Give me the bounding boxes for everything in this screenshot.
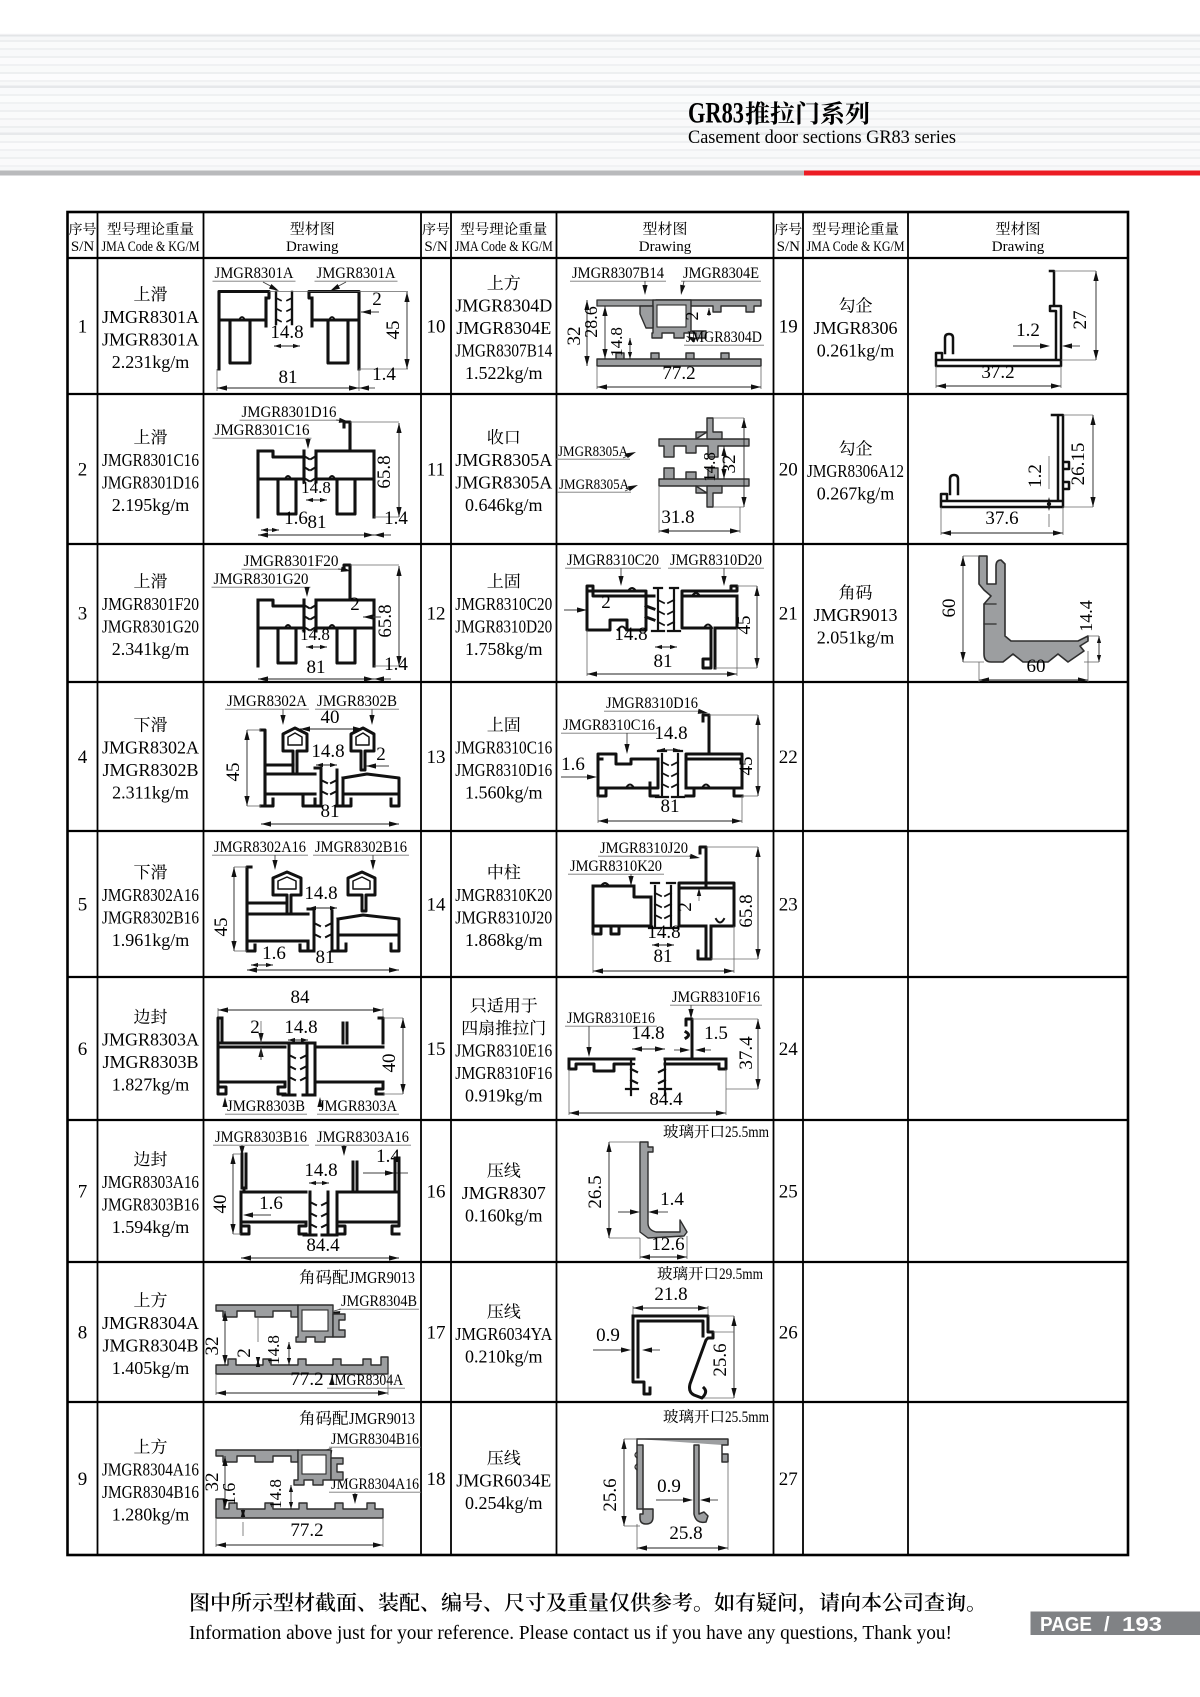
svg-text:14.8: 14.8 — [700, 452, 719, 482]
svg-text:65.8: 65.8 — [736, 894, 757, 927]
svg-text:Casement door sections GR83 se: Casement door sections GR83 series — [688, 128, 956, 148]
svg-text:2.195kg/m: 2.195kg/m — [112, 495, 190, 515]
svg-text:JMGR8310K20: JMGR8310K20 — [570, 858, 662, 875]
svg-text:/: / — [1104, 1614, 1110, 1636]
svg-text:4: 4 — [78, 747, 88, 768]
svg-text:JMGR8304A16: JMGR8304A16 — [331, 1476, 419, 1493]
svg-text:JMGR8305A: JMGR8305A — [559, 477, 629, 493]
svg-text:JMGR8310F16: JMGR8310F16 — [455, 1063, 552, 1083]
svg-text:1.2: 1.2 — [1016, 320, 1040, 341]
svg-text:JMGR8302A16: JMGR8302A16 — [214, 839, 306, 856]
svg-text:GR83: GR83 — [688, 97, 744, 130]
svg-text:2: 2 — [372, 289, 382, 310]
svg-text:77.2: 77.2 — [290, 1369, 323, 1390]
svg-text:1.4: 1.4 — [372, 364, 396, 385]
svg-text:JMGR8301A: JMGR8301A — [102, 329, 199, 349]
svg-text:JMGR9013: JMGR9013 — [349, 1268, 415, 1287]
svg-text:JMGR8305A: JMGR8305A — [455, 472, 552, 492]
svg-text:JMGR8301D16: JMGR8301D16 — [102, 472, 199, 492]
svg-text:JMGR8310J20: JMGR8310J20 — [455, 907, 552, 927]
svg-text:2: 2 — [376, 744, 386, 765]
svg-text:PAGE: PAGE — [1040, 1614, 1092, 1636]
svg-text:2: 2 — [250, 1017, 260, 1038]
svg-text:JMGR8301F20: JMGR8301F20 — [244, 553, 339, 570]
svg-text:81: 81 — [654, 946, 673, 967]
svg-text:11: 11 — [427, 460, 445, 481]
svg-text:26.5: 26.5 — [585, 1175, 606, 1208]
svg-text:1.6: 1.6 — [284, 508, 308, 529]
svg-text:27: 27 — [1070, 311, 1091, 330]
svg-text:JMGR8310E16: JMGR8310E16 — [455, 1041, 552, 1061]
svg-text:JMGR8304A: JMGR8304A — [329, 1372, 404, 1389]
svg-text:Drawing: Drawing — [639, 239, 692, 255]
svg-text:77.2: 77.2 — [662, 363, 695, 384]
svg-text:JMGR8303A: JMGR8303A — [102, 1029, 199, 1049]
svg-text:45: 45 — [211, 918, 232, 937]
svg-text:S/N: S/N — [777, 239, 801, 255]
svg-text:7: 7 — [78, 1182, 88, 1203]
svg-text:JMGR8307B14: JMGR8307B14 — [455, 341, 552, 361]
svg-text:8: 8 — [78, 1323, 88, 1344]
svg-text:9: 9 — [78, 1469, 88, 1490]
svg-text:84.4: 84.4 — [649, 1089, 683, 1110]
svg-text:2.231kg/m: 2.231kg/m — [112, 352, 190, 372]
svg-text:0.646kg/m: 0.646kg/m — [465, 495, 543, 515]
svg-text:81: 81 — [279, 367, 298, 388]
svg-text:5: 5 — [78, 895, 88, 916]
svg-text:0.261kg/m: 0.261kg/m — [817, 341, 895, 361]
svg-text:JMGR8303B16: JMGR8303B16 — [102, 1194, 199, 1214]
svg-text:13: 13 — [427, 747, 446, 768]
svg-text:JMGR8304B: JMGR8304B — [102, 1335, 198, 1355]
svg-text:0.267kg/m: 0.267kg/m — [817, 484, 895, 504]
svg-text:JMGR8304D: JMGR8304D — [686, 329, 762, 346]
svg-text:3: 3 — [78, 604, 88, 625]
svg-text:JMGR9013: JMGR9013 — [349, 1409, 415, 1428]
svg-text:JMGR8301F20: JMGR8301F20 — [102, 594, 199, 614]
svg-text:JMGR8310C16: JMGR8310C16 — [455, 737, 552, 757]
svg-text:JMGR8306A12: JMGR8306A12 — [807, 461, 904, 481]
svg-text:JMGR8302A: JMGR8302A — [227, 693, 308, 710]
svg-text:1.6: 1.6 — [561, 754, 585, 775]
svg-text:JMGR8302B16: JMGR8302B16 — [102, 907, 199, 927]
svg-text:81: 81 — [308, 512, 327, 533]
svg-text:81: 81 — [654, 651, 673, 672]
svg-text:14.8: 14.8 — [300, 625, 330, 644]
svg-text:37.2: 37.2 — [981, 362, 1014, 383]
svg-text:31.8: 31.8 — [661, 507, 694, 528]
svg-text:84: 84 — [291, 987, 311, 1008]
svg-text:2: 2 — [675, 902, 696, 912]
svg-text:81: 81 — [661, 796, 680, 817]
svg-text:JMGR8304E: JMGR8304E — [456, 318, 551, 338]
svg-text:JMGR8304B: JMGR8304B — [341, 1293, 417, 1310]
svg-text:JMGR8310K20: JMGR8310K20 — [455, 885, 552, 905]
svg-text:1.4: 1.4 — [660, 1189, 684, 1210]
svg-text:14.8: 14.8 — [311, 741, 344, 762]
svg-text:JMGR8303B: JMGR8303B — [102, 1052, 198, 1072]
svg-text:60: 60 — [1027, 656, 1046, 677]
svg-text:17: 17 — [427, 1323, 446, 1344]
svg-text:1.594kg/m: 1.594kg/m — [112, 1217, 190, 1237]
svg-text:JMGR8303A16: JMGR8303A16 — [102, 1172, 199, 1192]
svg-text:JMGR8301G20: JMGR8301G20 — [214, 571, 309, 588]
svg-text:60: 60 — [939, 599, 960, 618]
svg-text:14.8: 14.8 — [301, 478, 331, 497]
svg-text:27: 27 — [779, 1469, 798, 1490]
svg-text:14: 14 — [427, 895, 447, 916]
svg-text:JMGR8304D: JMGR8304D — [455, 296, 552, 316]
svg-text:25.6: 25.6 — [710, 1343, 731, 1376]
svg-text:45: 45 — [223, 763, 244, 782]
svg-text:15: 15 — [427, 1039, 446, 1060]
svg-text:JMGR8303B: JMGR8303B — [227, 1098, 305, 1115]
svg-text:1.758kg/m: 1.758kg/m — [465, 639, 543, 659]
svg-text:45: 45 — [383, 321, 404, 340]
svg-text:1: 1 — [78, 317, 88, 338]
svg-text:JMGR8301A: JMGR8301A — [317, 265, 397, 282]
svg-text:JMGR8303B16: JMGR8303B16 — [215, 1129, 307, 1146]
svg-text:40: 40 — [210, 1195, 231, 1214]
svg-text:JMGR8301G20: JMGR8301G20 — [102, 616, 199, 636]
svg-text:JMA Code & KG/M: JMA Code & KG/M — [102, 239, 200, 255]
svg-text:1.4: 1.4 — [384, 508, 408, 529]
svg-text:JMGR8304E: JMGR8304E — [683, 265, 759, 282]
svg-text:77.2: 77.2 — [290, 1520, 323, 1541]
svg-text:JMGR8305A: JMGR8305A — [558, 444, 628, 460]
svg-text:1.6: 1.6 — [259, 1193, 283, 1214]
svg-text:1.4: 1.4 — [376, 1146, 400, 1167]
svg-text:29.5mm: 29.5mm — [719, 1266, 763, 1283]
svg-text:84.4: 84.4 — [306, 1235, 340, 1256]
svg-text:0.9: 0.9 — [596, 1325, 620, 1346]
svg-text:193: 193 — [1122, 1614, 1162, 1636]
svg-text:JMGR8302B: JMGR8302B — [102, 760, 198, 780]
svg-text:2.051kg/m: 2.051kg/m — [817, 628, 895, 648]
svg-text:40: 40 — [321, 707, 340, 728]
svg-text:JMGR8310D20: JMGR8310D20 — [670, 552, 762, 569]
svg-text:20: 20 — [779, 460, 798, 481]
svg-text:JMGR8304A16: JMGR8304A16 — [102, 1459, 199, 1479]
svg-text:23: 23 — [779, 895, 798, 916]
svg-text:JMGR8310C20: JMGR8310C20 — [455, 594, 552, 614]
svg-text:16: 16 — [427, 1182, 446, 1203]
svg-text:25.5mm: 25.5mm — [725, 1124, 769, 1141]
svg-text:14.8: 14.8 — [304, 1160, 337, 1181]
svg-text:JMGR8304B16: JMGR8304B16 — [331, 1431, 419, 1448]
svg-text:JMGR8302A16: JMGR8302A16 — [102, 885, 199, 905]
svg-text:JMGR8310D16: JMGR8310D16 — [455, 760, 552, 780]
svg-text:Drawing: Drawing — [992, 239, 1045, 255]
svg-text:1.961kg/m: 1.961kg/m — [112, 930, 190, 950]
svg-text:JMGR8310D16: JMGR8310D16 — [606, 695, 698, 712]
svg-text:1.2: 1.2 — [1025, 464, 1046, 488]
svg-text:1.827kg/m: 1.827kg/m — [112, 1074, 190, 1094]
svg-text:14.4: 14.4 — [1076, 600, 1096, 632]
svg-text:JMGR8304B16: JMGR8304B16 — [102, 1482, 199, 1502]
svg-text:S/N: S/N — [424, 239, 448, 255]
svg-text:81: 81 — [307, 657, 326, 678]
svg-text:28.6: 28.6 — [581, 306, 601, 338]
svg-text:JMGR8310C20: JMGR8310C20 — [567, 552, 659, 569]
svg-text:22: 22 — [779, 747, 798, 768]
svg-text:S/N: S/N — [71, 239, 95, 255]
svg-text:JMGR8301C16: JMGR8301C16 — [102, 450, 199, 470]
svg-text:32: 32 — [719, 455, 740, 474]
svg-text:14.8: 14.8 — [654, 723, 687, 744]
svg-text:12: 12 — [427, 604, 446, 625]
svg-text:JMGR8302A: JMGR8302A — [102, 737, 199, 757]
svg-text:JMGR8310J20: JMGR8310J20 — [600, 840, 688, 857]
svg-text:37.4: 37.4 — [736, 1036, 757, 1070]
svg-text:1.4: 1.4 — [384, 654, 408, 675]
svg-text:JMGR8310F16: JMGR8310F16 — [672, 989, 760, 1006]
svg-text:2: 2 — [78, 460, 88, 481]
svg-text:19: 19 — [779, 317, 798, 338]
svg-text:2: 2 — [350, 594, 360, 615]
svg-text:25.6: 25.6 — [600, 1478, 621, 1511]
svg-text:JMGR8304A: JMGR8304A — [102, 1313, 199, 1333]
svg-text:10: 10 — [427, 317, 446, 338]
svg-text:14.8: 14.8 — [264, 1335, 283, 1365]
svg-text:2: 2 — [682, 312, 702, 321]
svg-text:21: 21 — [779, 604, 798, 625]
svg-text:1.560kg/m: 1.560kg/m — [465, 782, 543, 802]
svg-text:0.919kg/m: 0.919kg/m — [465, 1086, 543, 1106]
svg-text:JMGR8303A16: JMGR8303A16 — [317, 1129, 409, 1146]
svg-text:JMA Code & KG/M: JMA Code & KG/M — [807, 239, 905, 255]
svg-text:0.210kg/m: 0.210kg/m — [465, 1347, 543, 1367]
svg-text:1.405kg/m: 1.405kg/m — [112, 1358, 190, 1378]
svg-text:65.8: 65.8 — [375, 604, 396, 637]
svg-text:1.868kg/m: 1.868kg/m — [465, 930, 543, 950]
svg-text:JMGR8310D20: JMGR8310D20 — [455, 616, 552, 636]
svg-text:JMGR8302B16: JMGR8302B16 — [315, 839, 407, 856]
svg-text:6: 6 — [78, 1039, 88, 1060]
svg-text:25.8: 25.8 — [669, 1523, 702, 1544]
svg-text:45: 45 — [736, 757, 757, 776]
svg-text:14.8: 14.8 — [631, 1023, 664, 1044]
svg-text:1.522kg/m: 1.522kg/m — [465, 363, 543, 383]
svg-text:25: 25 — [779, 1182, 798, 1203]
svg-text:JMGR8307B14: JMGR8307B14 — [572, 265, 664, 282]
svg-text:0.160kg/m: 0.160kg/m — [465, 1206, 543, 1226]
svg-text:1.5: 1.5 — [704, 1023, 728, 1044]
svg-text:1.6: 1.6 — [219, 1483, 239, 1506]
svg-text:JMGR8303A: JMGR8303A — [319, 1098, 398, 1115]
svg-text:JMGR6034E: JMGR6034E — [456, 1471, 551, 1491]
svg-text:14.8: 14.8 — [647, 922, 680, 943]
svg-text:JMGR6034YA: JMGR6034YA — [455, 1324, 552, 1344]
svg-text:21.8: 21.8 — [654, 1284, 687, 1305]
svg-text:14.8: 14.8 — [607, 327, 626, 357]
svg-text:40: 40 — [379, 1054, 400, 1073]
svg-text:JMGR8301A: JMGR8301A — [215, 265, 295, 282]
svg-text:1.280kg/m: 1.280kg/m — [112, 1504, 190, 1524]
svg-text:JMA Code & KG/M: JMA Code & KG/M — [455, 239, 553, 255]
svg-text:37.6: 37.6 — [985, 508, 1018, 529]
svg-text:Drawing: Drawing — [286, 239, 339, 255]
svg-text:0.9: 0.9 — [657, 1476, 681, 1497]
svg-text:26: 26 — [779, 1323, 798, 1344]
svg-text:18: 18 — [427, 1469, 446, 1490]
svg-text:Information above just for you: Information above just for your referenc… — [189, 1622, 952, 1644]
svg-text:JMGR9013: JMGR9013 — [813, 605, 897, 625]
svg-text:14.8: 14.8 — [304, 883, 337, 904]
svg-text:2.311kg/m: 2.311kg/m — [112, 782, 189, 802]
svg-text:65.8: 65.8 — [374, 455, 395, 488]
svg-text:JMGR8301D16: JMGR8301D16 — [242, 404, 337, 421]
svg-text:81: 81 — [316, 947, 335, 968]
svg-text:2.341kg/m: 2.341kg/m — [112, 639, 190, 659]
svg-text:JMGR8307: JMGR8307 — [462, 1183, 546, 1203]
svg-text:32: 32 — [202, 1337, 223, 1356]
svg-text:JMGR8301C16: JMGR8301C16 — [215, 422, 310, 439]
svg-text:14.8: 14.8 — [614, 624, 647, 645]
svg-text:14.8: 14.8 — [266, 1479, 285, 1509]
svg-text:14.8: 14.8 — [284, 1017, 317, 1038]
svg-text:25.5mm: 25.5mm — [725, 1409, 769, 1426]
svg-text:26.15: 26.15 — [1068, 443, 1089, 486]
svg-text:81: 81 — [321, 801, 340, 822]
svg-text:JMGR8305A: JMGR8305A — [455, 450, 552, 470]
svg-text:JMGR8306: JMGR8306 — [813, 318, 897, 338]
svg-text:JMGR8301A: JMGR8301A — [102, 307, 199, 327]
svg-text:12.6: 12.6 — [651, 1234, 684, 1255]
svg-text:JMGR8310C16: JMGR8310C16 — [563, 717, 655, 734]
svg-text:24: 24 — [779, 1039, 799, 1060]
svg-text:1.6: 1.6 — [262, 943, 286, 964]
svg-text:14.8: 14.8 — [270, 322, 303, 343]
svg-text:2: 2 — [601, 592, 611, 613]
svg-text:2: 2 — [234, 1348, 255, 1358]
svg-text:0.254kg/m: 0.254kg/m — [465, 1493, 543, 1513]
